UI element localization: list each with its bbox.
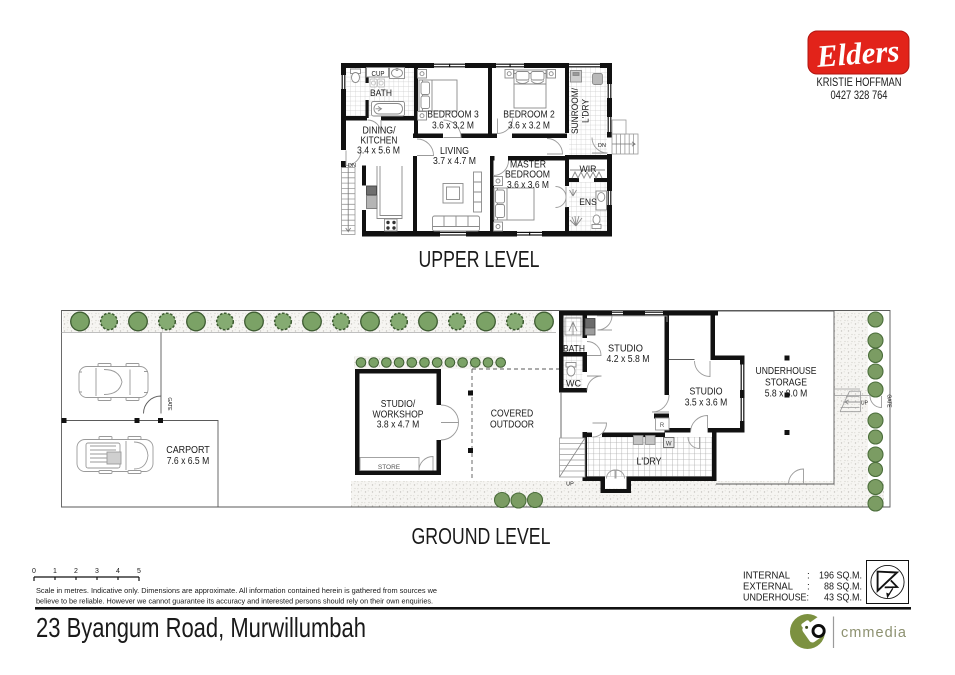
svg-text:ENS: ENS [579,197,597,208]
svg-text:3.7 x 4.7 M: 3.7 x 4.7 M [433,156,476,167]
svg-text:BEDROOM 2: BEDROOM 2 [503,110,555,121]
svg-text:COVERED: COVERED [491,409,534,420]
svg-text:5: 5 [137,568,141,575]
svg-text:1: 1 [53,568,57,575]
svg-text:3.4 x 5.6 M: 3.4 x 5.6 M [357,146,400,157]
svg-text:cmmedia: cmmedia [841,625,908,641]
svg-text:BATH: BATH [370,88,392,99]
svg-text:3.5 x 3.6 M: 3.5 x 3.6 M [685,398,728,409]
svg-text:STUDIO: STUDIO [690,387,723,398]
svg-text:SUNROOM/: SUNROOM/ [570,88,581,134]
svg-text:4: 4 [116,568,120,575]
svg-text:L'DRY: L'DRY [637,457,662,468]
svg-text:3.6 x 3.6 M: 3.6 x 3.6 M [507,180,549,191]
svg-text:UP: UP [566,482,574,488]
svg-text:believe to be reliable. Howev: believe to be reliable. However we canno… [36,597,433,606]
svg-text:KRISTIE HOFFMAN: KRISTIE HOFFMAN [817,77,902,89]
svg-text:23 Byangum Road, Murwillumbah: 23 Byangum Road, Murwillumbah [36,612,366,643]
svg-text:7.6 x 6.5 M: 7.6 x 6.5 M [167,456,210,467]
svg-text:3.6 x 3.2 M: 3.6 x 3.2 M [508,121,550,132]
svg-text:UPPER LEVEL: UPPER LEVEL [419,246,540,272]
svg-text:5.8 x 8.0 M: 5.8 x 8.0 M [765,389,808,400]
svg-text:196 SQ.M.: 196 SQ.M. [819,571,862,582]
svg-text:0: 0 [32,568,36,575]
svg-text:0427 328 764: 0427 328 764 [831,90,888,102]
svg-text:Elders: Elders [815,33,901,74]
svg-text:4.2 x 5.8 M: 4.2 x 5.8 M [607,354,650,365]
svg-text:STORAGE: STORAGE [765,378,807,389]
svg-text::: : [807,571,810,582]
svg-text:3.8 x 4.7 M: 3.8 x 4.7 M [377,420,420,431]
svg-text:BATH: BATH [563,344,585,355]
svg-text:INTERNAL: INTERNAL [743,571,790,582]
svg-text:UNDERHOUSE: UNDERHOUSE [756,366,817,377]
svg-text:CUP: CUP [372,71,385,78]
svg-text:L'DRY: L'DRY [581,98,592,123]
svg-text:BEDROOM 3: BEDROOM 3 [427,110,479,121]
svg-text:Scale in metres. Indicative o: Scale in metres. Indicative only. Dimens… [36,586,437,595]
svg-text:GROUND LEVEL: GROUND LEVEL [412,523,551,549]
svg-text:UNDERHOUSE:: UNDERHOUSE: [743,593,809,604]
svg-text:STUDIO/: STUDIO/ [381,399,416,410]
svg-text:UP: UP [861,401,869,407]
svg-text:R: R [660,423,665,429]
svg-text:CARPORT: CARPORT [166,445,210,456]
svg-text:43 SQ.M.: 43 SQ.M. [824,593,862,604]
svg-text:BEDROOM: BEDROOM [505,170,550,181]
svg-text:EXTERNAL: EXTERNAL [743,582,793,593]
svg-text:3: 3 [95,568,99,575]
svg-text:STUDIO: STUDIO [608,344,643,355]
svg-text:W: W [666,442,672,448]
svg-text::: : [807,582,810,593]
svg-text:3.6 x 3.2 M: 3.6 x 3.2 M [432,121,474,132]
svg-text:OUTDOOR: OUTDOOR [490,420,534,431]
svg-text:STORE: STORE [378,464,401,471]
svg-text:WIR: WIR [580,164,597,175]
svg-text:WC: WC [566,379,581,390]
svg-text:GATE: GATE [166,397,172,411]
svg-text:DN: DN [598,143,606,149]
svg-text:DN: DN [348,163,356,169]
svg-text:88 SQ.M.: 88 SQ.M. [824,582,862,593]
svg-text:GATE: GATE [886,394,892,408]
svg-text:2: 2 [74,568,78,575]
